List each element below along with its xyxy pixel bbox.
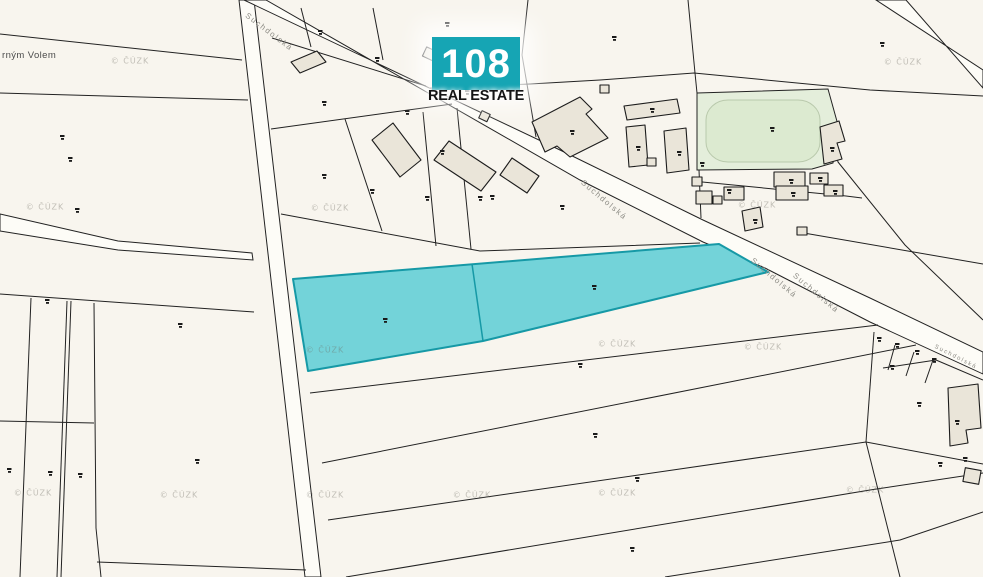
cuzk-watermark: © ČÚZK xyxy=(453,491,492,500)
cuzk-watermark: © ČÚZK xyxy=(884,58,923,67)
green-field xyxy=(697,89,838,170)
building xyxy=(713,196,722,204)
building xyxy=(647,158,656,166)
building xyxy=(692,177,702,186)
cuzk-watermark: © ČÚZK xyxy=(111,57,150,66)
cuzk-watermark: © ČÚZK xyxy=(14,489,53,498)
cuzk-watermark: © ČÚZK xyxy=(26,203,65,212)
cuzk-watermark: © ČÚZK xyxy=(311,204,350,213)
building xyxy=(724,187,744,200)
building xyxy=(963,468,981,485)
building xyxy=(696,191,712,204)
cadastral-map: 108 REAL ESTATE rným Volem SuchdolskáSuc… xyxy=(0,0,983,577)
building xyxy=(742,207,763,231)
cuzk-watermark: © ČÚZK xyxy=(598,340,637,349)
building xyxy=(664,128,689,173)
cuzk-watermark: © ČÚZK xyxy=(744,343,783,352)
logo-108: 108 xyxy=(432,37,520,90)
logo-subtitle: REAL ESTATE xyxy=(428,88,524,104)
green-field-inner xyxy=(706,100,820,162)
cuzk-watermark: © ČÚZK xyxy=(738,201,777,210)
cuzk-watermark: © ČÚZK xyxy=(160,491,199,500)
building xyxy=(797,227,807,235)
cuzk-watermark: © ČÚZK xyxy=(306,491,345,500)
cuzk-watermark: © ČÚZK xyxy=(846,486,885,495)
place-name-label: rným Volem xyxy=(2,50,56,61)
building xyxy=(600,85,609,93)
cuzk-watermark: © ČÚZK xyxy=(306,346,345,355)
logo-number: 108 xyxy=(441,44,511,84)
building xyxy=(820,121,845,164)
cuzk-watermark: © ČÚZK xyxy=(598,489,637,498)
